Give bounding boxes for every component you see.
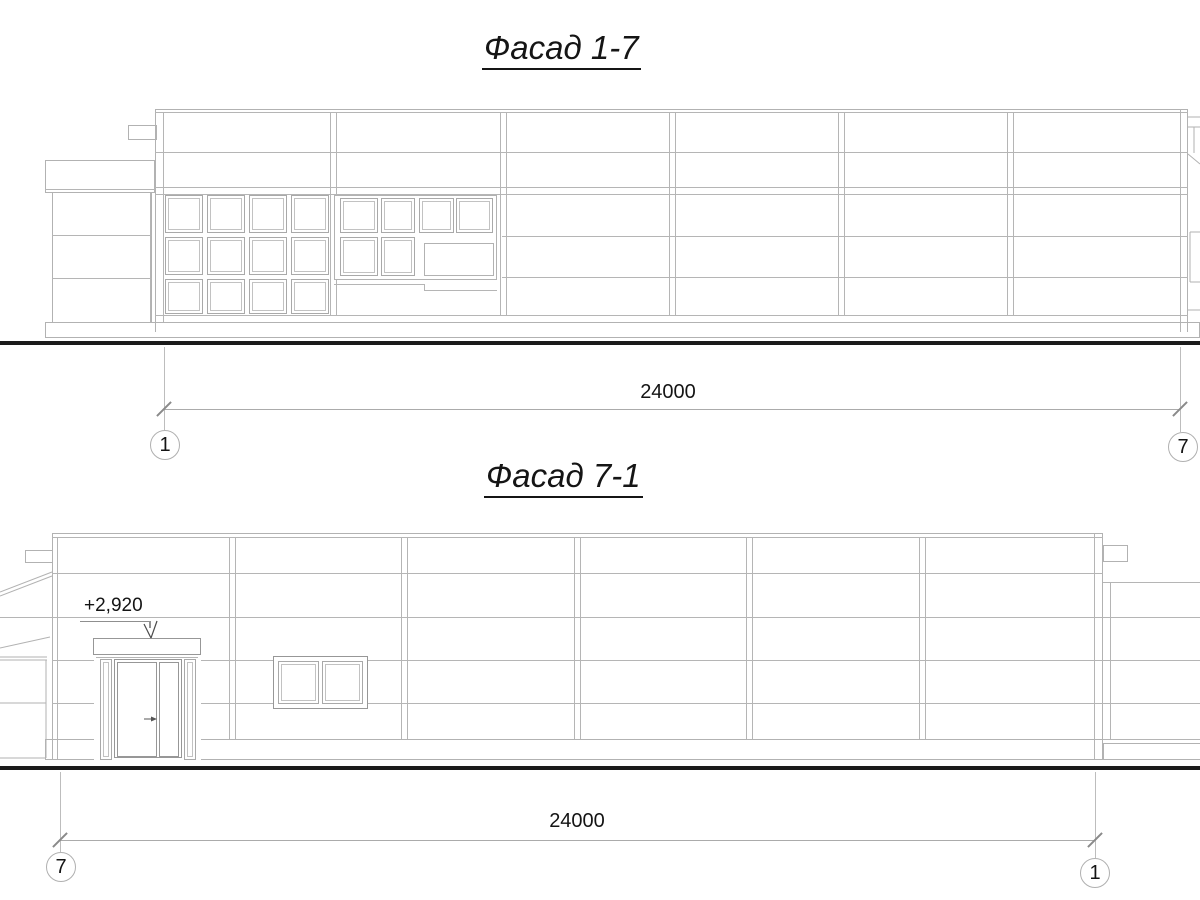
base-band (45, 739, 1103, 760)
window-pane (249, 237, 287, 275)
annex-band (1103, 660, 1200, 661)
wall-edge-line (1094, 533, 1095, 760)
axis-circle-1: 1 (1080, 858, 1110, 888)
door-canopy (93, 638, 201, 655)
window-pane (322, 661, 363, 704)
pilaster (669, 112, 676, 315)
pilaster (500, 112, 507, 315)
window-pane (249, 195, 287, 233)
axis-circle-1: 1 (150, 430, 180, 460)
axis-number: 7 (55, 856, 66, 879)
window-pane (291, 237, 329, 275)
extension-line (164, 347, 165, 430)
facade-1-7-title: Фасад 1-7 (482, 29, 641, 70)
ground-line (0, 766, 1200, 770)
wall-edge-line (163, 112, 164, 322)
door-post (184, 659, 196, 760)
window (273, 656, 368, 709)
roof-vent (1103, 545, 1128, 562)
pilaster (401, 537, 408, 739)
roof-vent (128, 125, 157, 140)
right-edge-fragment (1188, 110, 1200, 340)
axis-circle-7: 7 (46, 852, 76, 882)
window-pane (207, 279, 245, 314)
window-pane (165, 237, 203, 275)
axis-number: 1 (1089, 862, 1100, 885)
window-sill-line (424, 290, 497, 291)
recessed-panel (424, 243, 494, 276)
horizontal-band (0, 617, 1200, 618)
annex-band (52, 235, 152, 236)
elevation-arrow (142, 621, 160, 639)
dimension-label: 24000 (598, 381, 738, 404)
window-pane (419, 198, 454, 233)
door-post (100, 659, 112, 760)
window-pane (291, 279, 329, 314)
axis-circle-7: 7 (1168, 432, 1198, 462)
window-grid (165, 195, 329, 314)
horizontal-band (502, 277, 1188, 278)
pilaster (1007, 112, 1014, 315)
annex-band (1103, 739, 1200, 740)
dimension-line (164, 409, 1180, 410)
left-edge-annex (0, 560, 55, 770)
window-pane (340, 237, 378, 276)
annex-base (1103, 743, 1200, 760)
door-swing-arrow (144, 715, 158, 723)
window-pane (381, 198, 415, 233)
wall-edge-line (1180, 109, 1181, 332)
axis-number: 1 (159, 434, 170, 457)
window-pane (291, 195, 329, 233)
horizontal-band (502, 236, 1188, 237)
axis-number: 7 (1177, 436, 1188, 459)
elevation-label: +2,920 (84, 595, 143, 617)
window-pane (381, 237, 415, 276)
drawing-canvas: Фасад 1-7 (0, 0, 1200, 900)
pilaster (838, 112, 845, 315)
annex-roof-line (1103, 582, 1200, 583)
window-sill-line (334, 284, 424, 285)
door-leaf (117, 662, 157, 757)
window-pane (340, 198, 378, 233)
annex-band (1103, 703, 1200, 704)
ground-line (0, 341, 1200, 345)
pilaster (229, 537, 236, 739)
window-pane (165, 279, 203, 314)
canopy-lip (96, 657, 198, 658)
extension-line (1095, 772, 1096, 858)
annex-band (52, 278, 152, 279)
window-pane (165, 195, 203, 233)
annex-roof-line (45, 189, 155, 190)
window-pane (207, 237, 245, 275)
annex-wall-edge (150, 193, 151, 322)
window-pane (207, 195, 245, 233)
dimension-line (60, 840, 1095, 841)
window-pane (249, 279, 287, 314)
pilaster (574, 537, 581, 739)
window-pane (456, 198, 493, 233)
door-leaf (159, 662, 179, 757)
base-band (45, 322, 1200, 338)
extension-line (1180, 347, 1181, 432)
dimension-label: 24000 (507, 810, 647, 833)
pilaster (919, 537, 926, 739)
plinth-line (155, 315, 1188, 316)
window-pane (278, 661, 319, 704)
pilaster (746, 537, 753, 739)
wall-edge-line (57, 537, 58, 760)
facade-7-1-title: Фасад 7-1 (484, 457, 643, 498)
elevation-leader-line (80, 621, 149, 622)
annex-wall (52, 193, 152, 322)
